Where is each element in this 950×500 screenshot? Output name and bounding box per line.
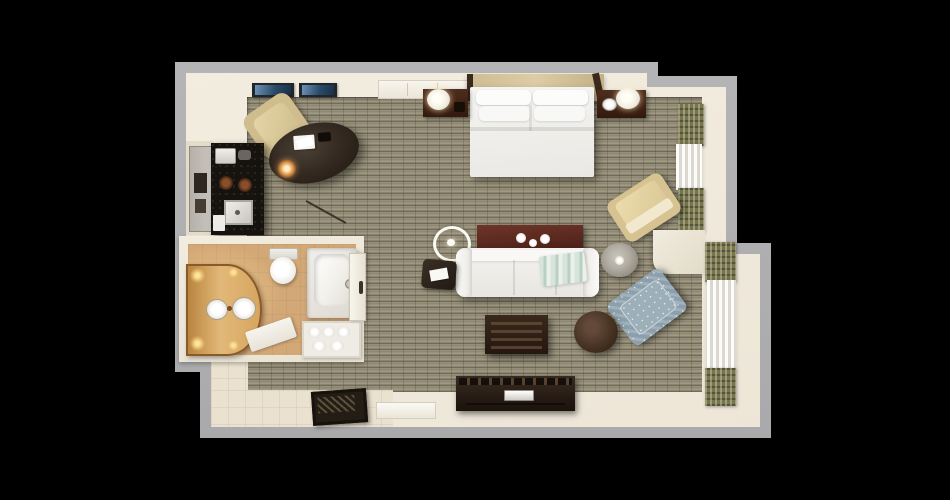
- pillow: [533, 90, 588, 105]
- telephone: [318, 132, 332, 142]
- rolled-towel: [322, 326, 335, 338]
- frame-art: [302, 85, 334, 95]
- coffee-cup: [219, 176, 233, 190]
- drawer-line: [466, 403, 565, 405]
- bathroom: [179, 236, 364, 362]
- sink-basin: [232, 297, 256, 320]
- duvet-fold: [470, 127, 594, 131]
- lamp-finial: [615, 256, 624, 265]
- doormat: [311, 388, 368, 426]
- nightstand: [423, 89, 468, 117]
- sconce-light: [228, 267, 239, 278]
- table-lamp: [427, 89, 450, 110]
- table-slat: [491, 338, 542, 341]
- toilet: [267, 248, 298, 286]
- sconce-light: [228, 340, 239, 351]
- desk-lamp: [275, 157, 299, 181]
- towel-shelf: [302, 321, 361, 358]
- pillow: [476, 90, 531, 105]
- light-dot: [447, 239, 455, 246]
- door-handle: [359, 281, 363, 294]
- drape-panel: [705, 242, 736, 282]
- sconce-light: [190, 336, 205, 351]
- entry-door: [376, 402, 436, 419]
- table-slat: [491, 346, 542, 349]
- drawer-handle: [504, 390, 534, 401]
- bathroom-door: [349, 253, 366, 321]
- sink-basin: [206, 299, 228, 320]
- table-slat: [491, 330, 542, 333]
- floor-cord: [305, 200, 346, 224]
- faucet: [227, 306, 232, 311]
- sconce-light: [190, 268, 205, 283]
- floor-plan: [0, 0, 950, 500]
- drape-panel: [678, 188, 704, 232]
- coffee-cup: [238, 178, 252, 192]
- throw-blanket: [538, 251, 587, 286]
- ottoman: [574, 311, 618, 353]
- candle: [516, 233, 526, 243]
- drape-panel: [678, 104, 704, 146]
- bar-sink: [224, 200, 253, 225]
- duvet-crease: [529, 105, 532, 131]
- side-table: [421, 259, 457, 291]
- sheer-curtain: [676, 144, 702, 190]
- candle: [540, 234, 550, 244]
- cushion-seam: [513, 260, 515, 295]
- drape-panel: [705, 368, 736, 406]
- bar-counter: [211, 143, 264, 235]
- sofa: [456, 248, 599, 297]
- mirror-reflection: [194, 173, 207, 193]
- pillow: [479, 106, 530, 121]
- picture-frame: [299, 83, 337, 97]
- drain: [235, 210, 240, 215]
- furniture-layer: [0, 0, 950, 500]
- sheer-curtain: [707, 280, 736, 372]
- rolled-towel: [330, 340, 344, 352]
- floor-lamp: [601, 243, 638, 277]
- bed: [470, 87, 594, 177]
- toilet-bowl: [270, 257, 296, 284]
- rolled-towel: [308, 326, 321, 338]
- chair-cushion: [618, 278, 678, 336]
- coffee-maker: [215, 148, 236, 164]
- console-top-slats: [459, 378, 572, 385]
- ice-bucket: [602, 98, 617, 111]
- phone: [454, 102, 465, 112]
- rolled-towel: [312, 340, 326, 352]
- paper: [429, 268, 449, 282]
- table-slat: [491, 322, 542, 325]
- kettle: [238, 150, 251, 160]
- mirror-reflection: [195, 199, 206, 213]
- sofa-arm: [456, 248, 472, 297]
- screenshot-canvas: [0, 0, 950, 500]
- tub-basin: [314, 254, 350, 306]
- wall-pier: [653, 230, 705, 274]
- pillow: [534, 106, 585, 121]
- door-seam: [407, 83, 408, 96]
- table-lamp: [616, 88, 640, 109]
- towel-stack: [213, 215, 225, 231]
- media-console: [456, 376, 575, 411]
- coffee-table: [485, 315, 548, 354]
- nightstand: [597, 90, 646, 118]
- candle: [529, 239, 537, 247]
- mat-weave: [317, 395, 355, 414]
- rolled-towel: [337, 326, 350, 338]
